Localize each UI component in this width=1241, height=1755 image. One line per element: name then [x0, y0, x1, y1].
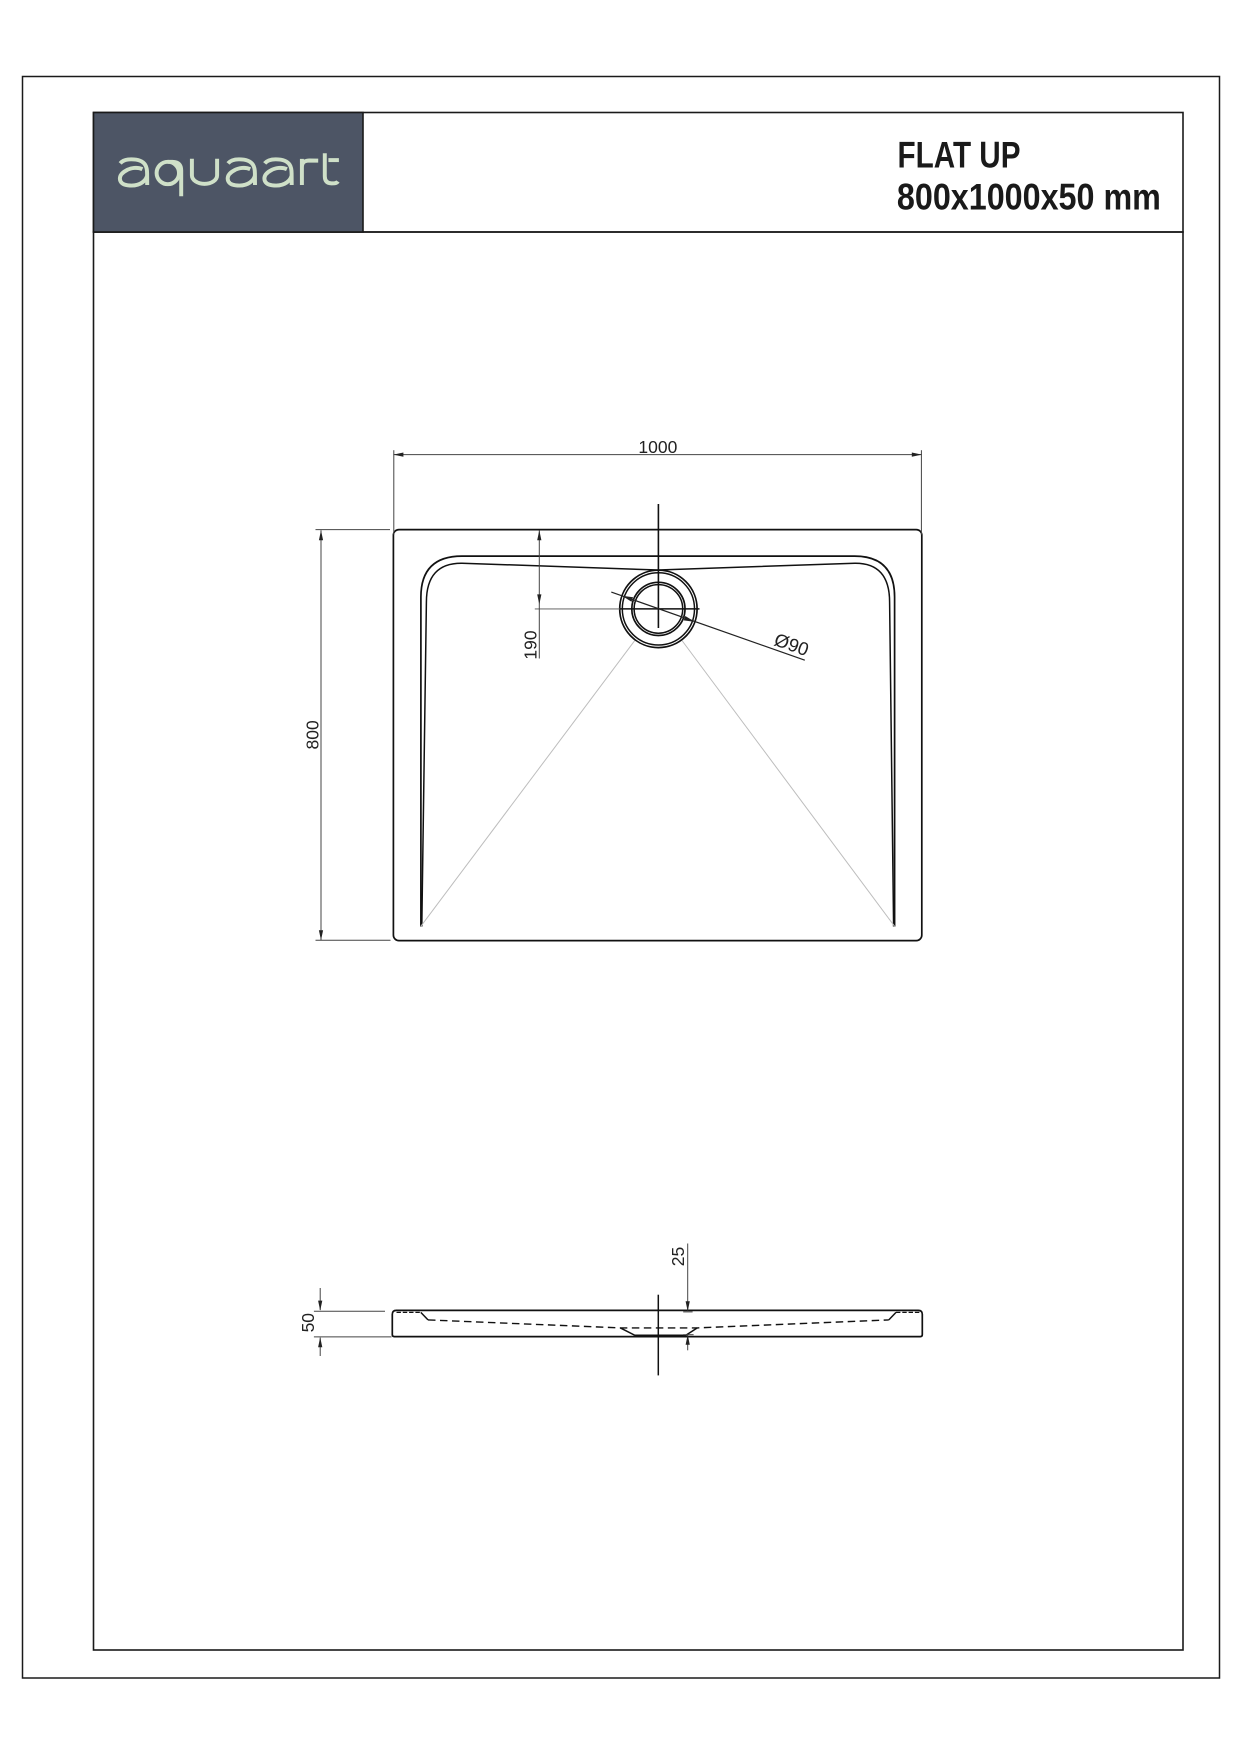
svg-text:190: 190: [521, 630, 541, 659]
svg-text:25: 25: [668, 1247, 688, 1266]
svg-text:1000: 1000: [638, 437, 677, 457]
svg-text:800: 800: [302, 720, 322, 749]
svg-text:Ø90: Ø90: [772, 629, 812, 660]
svg-text:FLAT UP: FLAT UP: [898, 134, 1021, 175]
svg-text:800x1000x50 mm: 800x1000x50 mm: [897, 177, 1161, 218]
svg-text:50: 50: [298, 1313, 318, 1333]
